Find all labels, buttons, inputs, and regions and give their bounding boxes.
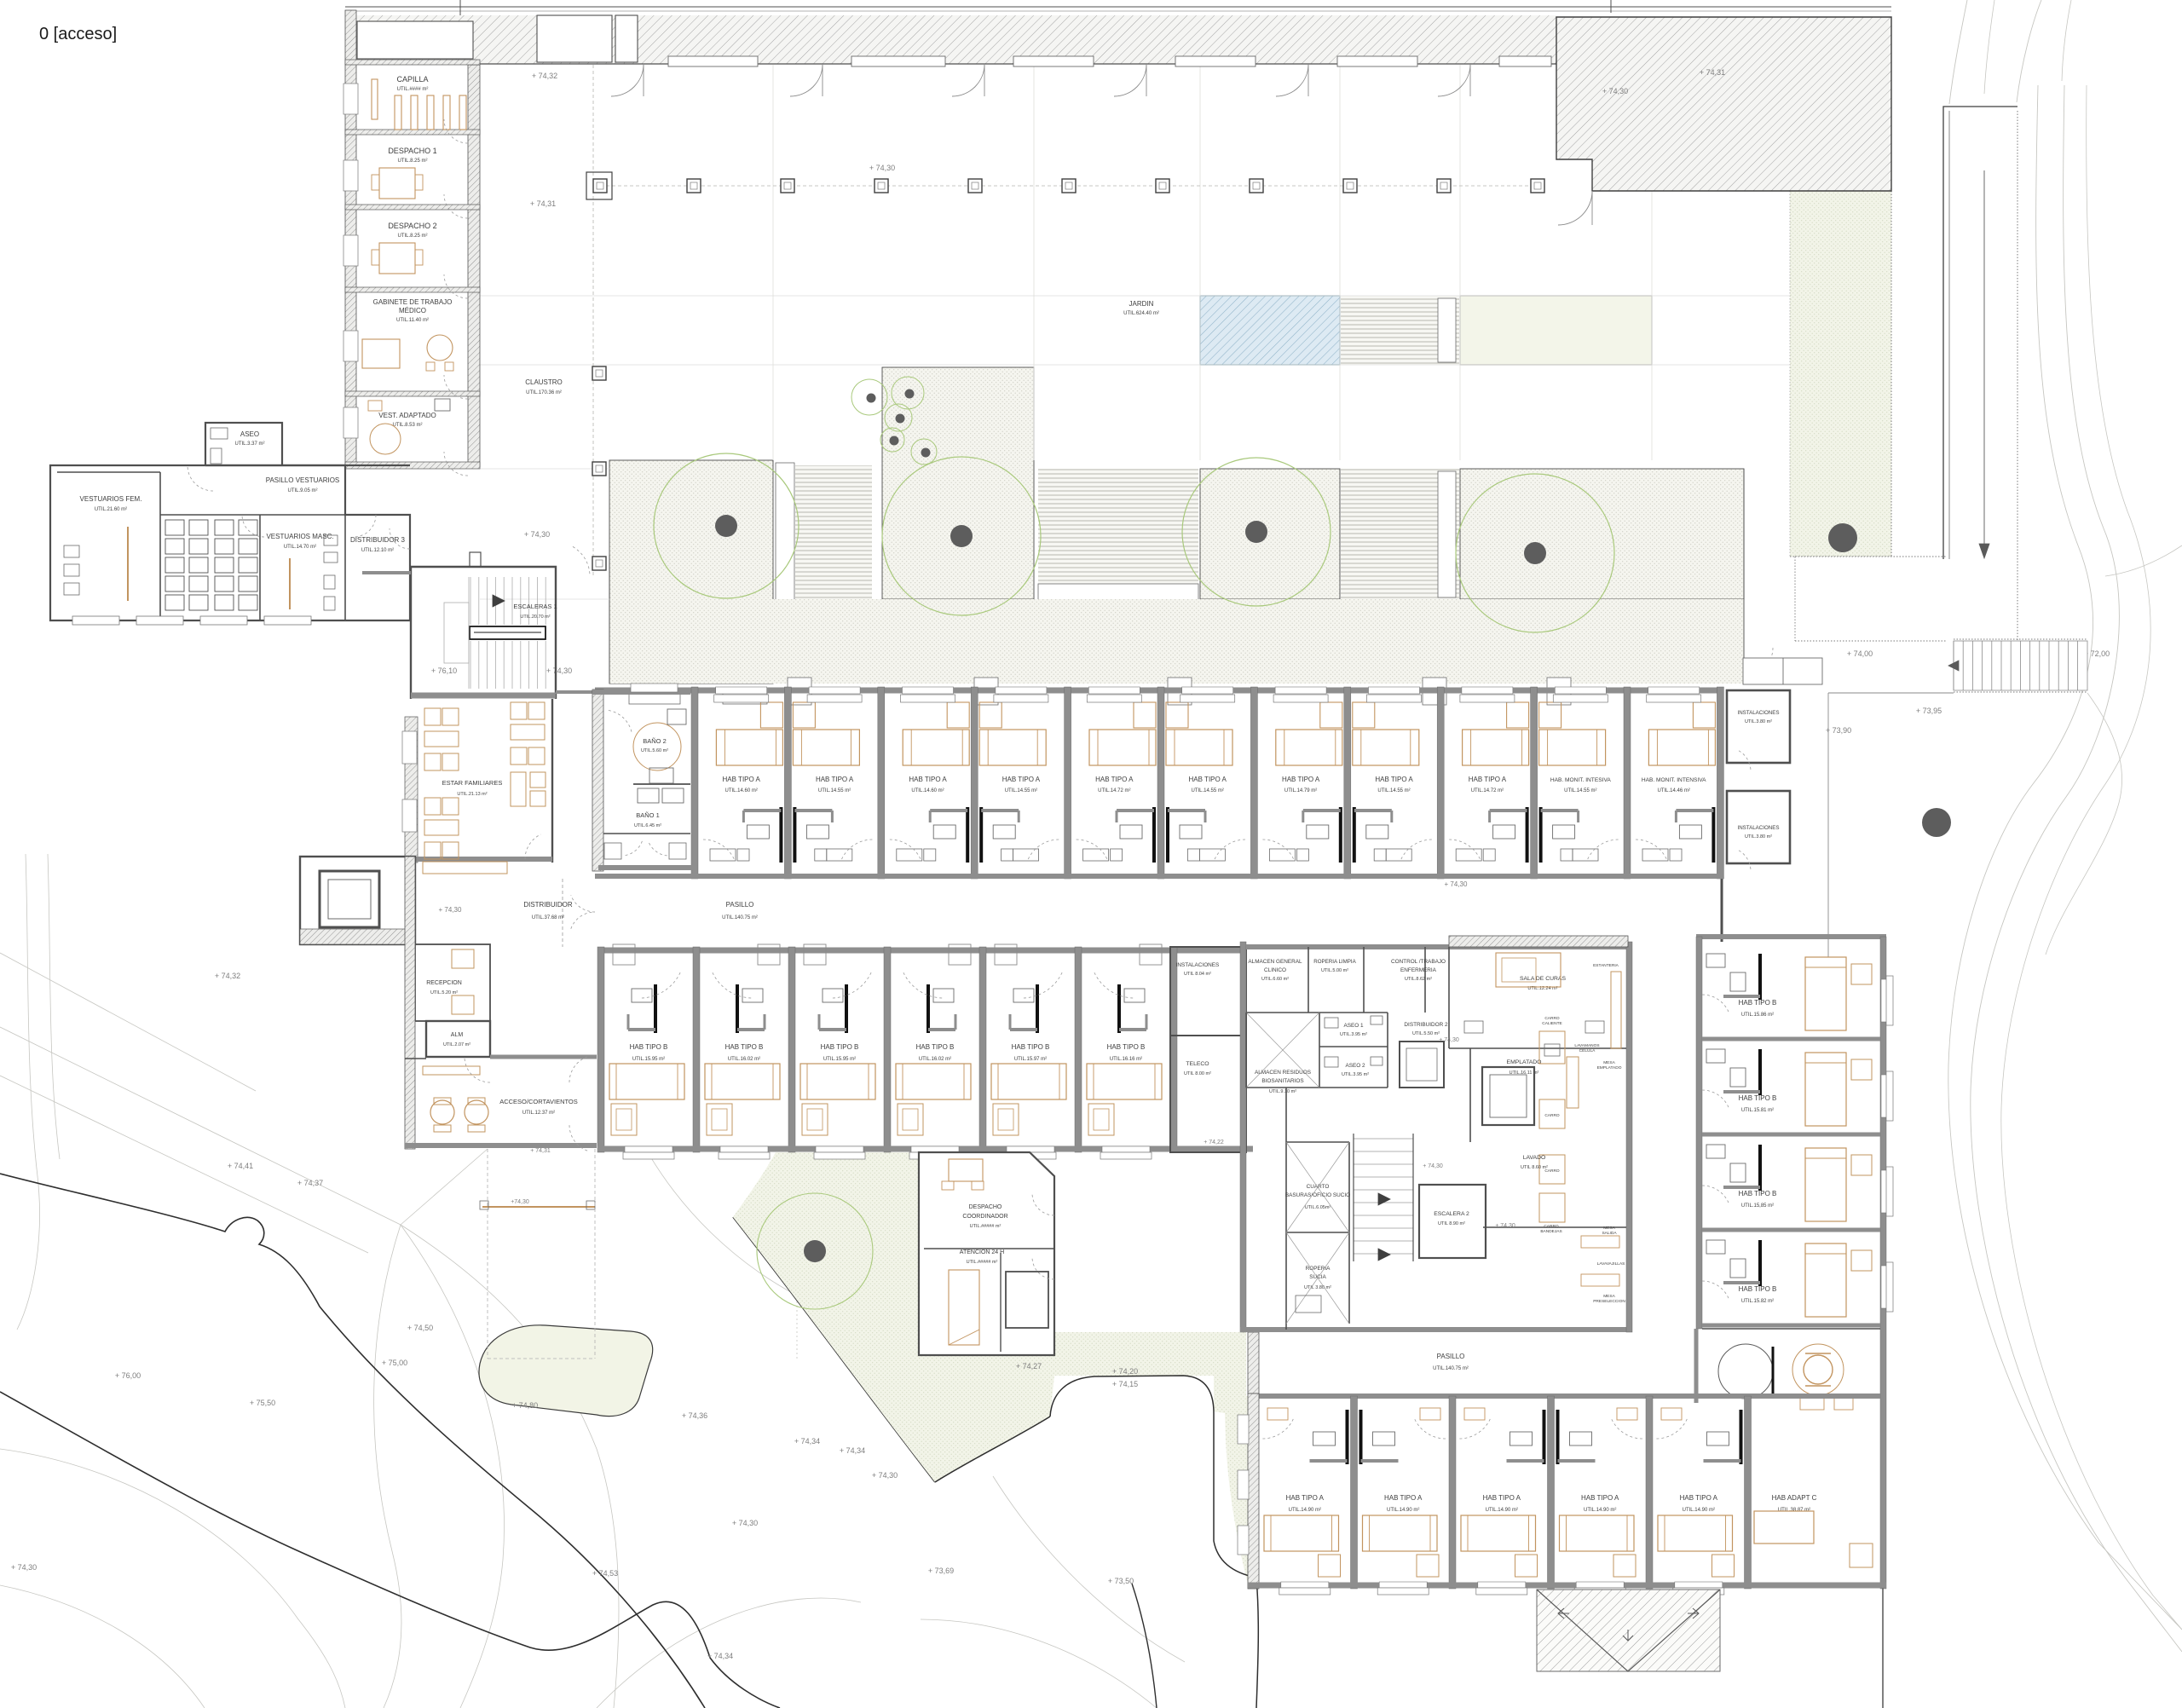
- svg-text:HAB TIPO B: HAB TIPO B: [1739, 1285, 1777, 1293]
- svg-text:+ 73,95: + 73,95: [1916, 707, 1942, 715]
- svg-text:UTIL.14.79 m²: UTIL.14.79 m²: [1284, 788, 1317, 793]
- svg-text:UTIL.8.25 m²: UTIL.8.25 m²: [397, 159, 427, 164]
- svg-text:HAB. MONIT. INTESIVA: HAB. MONIT. INTESIVA: [1550, 777, 1612, 783]
- svg-text:LAVAMANOS: LAVAMANOS: [1574, 1043, 1599, 1048]
- svg-text:+ 75,50: + 75,50: [250, 1399, 275, 1407]
- svg-text:UTIL.2.07 m²: UTIL.2.07 m²: [443, 1042, 470, 1047]
- svg-text:HAB TIPO A: HAB TIPO A: [1189, 776, 1227, 783]
- svg-text:UTIL.14.60 m²: UTIL.14.60 m²: [725, 788, 758, 793]
- svg-text:EMPLATADO: EMPLATADO: [1597, 1065, 1622, 1070]
- svg-text:ASEO 1: ASEO 1: [1343, 1023, 1364, 1029]
- svg-text:+ 74,32: + 74,32: [215, 972, 240, 980]
- svg-text:+ 74,30: + 74,30: [11, 1563, 37, 1572]
- svg-text:UTIL.14.55 m²: UTIL.14.55 m²: [1377, 788, 1410, 793]
- svg-text:ESTANTERIA: ESTANTERIA: [1593, 963, 1619, 968]
- svg-text:HAB TIPO A: HAB TIPO A: [1581, 1494, 1619, 1502]
- svg-text:+ 74,34: + 74,34: [707, 1652, 733, 1660]
- svg-text:GABINETE DE TRABAJO: GABINETE DE TRABAJO: [373, 298, 453, 306]
- svg-text:UTIL.6.60 m²: UTIL.6.60 m²: [1261, 977, 1289, 982]
- svg-text:+ 74,41: + 74,41: [228, 1162, 253, 1170]
- svg-text:HAB. MONIT. INTENSIVA: HAB. MONIT. INTENSIVA: [1642, 777, 1706, 783]
- svg-text:UTIL.15.95 m²: UTIL.15.95 m²: [632, 1057, 665, 1062]
- svg-text:+ 74,36: + 74,36: [682, 1411, 707, 1420]
- svg-text:ESCALERA 2: ESCALERA 2: [1434, 1211, 1469, 1217]
- svg-text:+ 74,32: + 74,32: [532, 72, 557, 80]
- svg-text:UTIL.##### m²: UTIL.##### m²: [970, 1224, 1002, 1229]
- svg-text:+ 73,69: + 73,69: [928, 1567, 954, 1575]
- svg-text:+ 74,00: + 74,00: [1847, 649, 1873, 658]
- svg-text:PRESELECCION: PRESELECCION: [1593, 1299, 1625, 1304]
- svg-text:UTIL 8.90 m²: UTIL 8.90 m²: [1438, 1221, 1465, 1226]
- svg-text:UTIL.6.45 m²: UTIL.6.45 m²: [634, 823, 661, 828]
- svg-text:UTIL.3.95 m²: UTIL.3.95 m²: [1342, 1072, 1369, 1077]
- svg-text:UTIL.140.75 m²: UTIL.140.75 m²: [722, 915, 758, 920]
- svg-text:UTIL.14.55 m²: UTIL.14.55 m²: [1192, 788, 1224, 793]
- svg-text:MÉDICO: MÉDICO: [399, 307, 426, 314]
- svg-text:UTIL 8.00 m²: UTIL 8.00 m²: [1184, 1071, 1211, 1076]
- svg-text:UTIL.170.36 m²: UTIL.170.36 m²: [526, 390, 562, 395]
- svg-text:VEST. ADAPTADO: VEST. ADAPTADO: [378, 412, 436, 419]
- svg-text:+ 74,30: + 74,30: [524, 530, 550, 539]
- svg-text:UTIL.16.16 m²: UTIL.16.16 m²: [1110, 1057, 1142, 1062]
- svg-text:VESTUARIOS FEM.: VESTUARIOS FEM.: [80, 495, 142, 503]
- svg-text:HAB TIPO A: HAB TIPO A: [816, 776, 854, 783]
- svg-text:ESTAR FAMILIARES: ESTAR FAMILIARES: [442, 779, 503, 787]
- svg-text:HAB TIPO A: HAB TIPO A: [1469, 776, 1507, 783]
- svg-text:HAB TIPO B: HAB TIPO B: [725, 1043, 764, 1051]
- svg-text:UTIL.15.81 m²: UTIL.15.81 m²: [1741, 1108, 1774, 1113]
- svg-text:ACCESO/CORTAVIENTOS: ACCESO/CORTAVIENTOS: [499, 1098, 578, 1105]
- svg-text:UTIL.9.10 m²: UTIL.9.10 m²: [1269, 1089, 1296, 1094]
- svg-text:+ 74,30: + 74,30: [1439, 1037, 1459, 1043]
- svg-text:CELULA: CELULA: [1579, 1048, 1596, 1053]
- svg-text:CARRO: CARRO: [1544, 1224, 1559, 1229]
- svg-text:+ 74,30: + 74,30: [732, 1519, 758, 1527]
- svg-text:HAB TIPO B: HAB TIPO B: [1012, 1043, 1050, 1051]
- svg-text:BAÑO 1: BAÑO 1: [636, 811, 660, 819]
- svg-text:HAB ADAPT C: HAB ADAPT C: [1772, 1494, 1817, 1502]
- svg-text:+ 74,15: + 74,15: [1112, 1380, 1138, 1388]
- svg-text:HAB TIPO A: HAB TIPO A: [1384, 1494, 1423, 1502]
- svg-text:0 [acceso]: 0 [acceso]: [39, 25, 117, 43]
- svg-text:UTIL.14.90 m²: UTIL.14.90 m²: [1387, 1508, 1419, 1513]
- svg-text:+ 74,30: + 74,30: [1445, 880, 1468, 888]
- svg-text:UTIL.8.62 m²: UTIL.8.62 m²: [1405, 977, 1432, 982]
- svg-text:ROPERIA LIMPIA: ROPERIA LIMPIA: [1313, 959, 1356, 965]
- svg-text:UTIL.14.60 m²: UTIL.14.60 m²: [911, 788, 944, 793]
- svg-text:+ 74,30: + 74,30: [869, 164, 895, 172]
- svg-text:MESA: MESA: [1603, 1226, 1615, 1231]
- svg-text:UTIL 3.80 m²: UTIL 3.80 m²: [1304, 1285, 1331, 1290]
- svg-text:HAB TIPO B: HAB TIPO B: [1739, 1190, 1777, 1197]
- svg-text:UTIL.20.70 m²: UTIL.20.70 m²: [520, 615, 550, 620]
- svg-text:ESCALERAS 1: ESCALERAS 1: [513, 603, 557, 610]
- svg-text:+ 74,34: + 74,34: [840, 1446, 865, 1455]
- svg-text:RECEPCION: RECEPCION: [426, 980, 462, 986]
- svg-text:ASEO: ASEO: [240, 430, 259, 438]
- svg-text:UTIL.8.25 m²: UTIL.8.25 m²: [397, 234, 427, 239]
- svg-text:UTIL.624.40 m²: UTIL.624.40 m²: [1123, 311, 1159, 316]
- svg-text:ALM: ALM: [451, 1032, 464, 1038]
- svg-text:MESA: MESA: [1603, 1294, 1615, 1299]
- svg-text:UTIL 8.04 m²: UTIL 8.04 m²: [1184, 972, 1211, 977]
- svg-text:INSTALACIONES: INSTALACIONES: [1737, 825, 1779, 831]
- svg-text:+ 74,30: + 74,30: [872, 1471, 898, 1480]
- svg-text:DISTRIBUIDOR: DISTRIBUIDOR: [523, 901, 573, 909]
- svg-text:PASILLO: PASILLO: [726, 901, 754, 909]
- svg-text:CAPILLA: CAPILLA: [396, 75, 428, 84]
- svg-text:HAB TIPO A: HAB TIPO A: [1680, 1494, 1718, 1502]
- svg-text:+ 74,20: + 74,20: [1112, 1367, 1138, 1376]
- svg-text:UTIL.9.05 m²: UTIL.9.05 m²: [287, 488, 317, 493]
- svg-text:UTIL.14.72 m²: UTIL.14.72 m²: [1098, 788, 1130, 793]
- svg-text:DISTRIBUIDOR 2: DISTRIBUIDOR 2: [1404, 1022, 1448, 1028]
- svg-text:+ 76,00: + 76,00: [115, 1371, 141, 1380]
- svg-text:UTIL.5.20 m²: UTIL.5.20 m²: [430, 990, 458, 995]
- svg-text:UTIL.11.40 m²: UTIL.11.40 m²: [396, 318, 429, 323]
- svg-text:HAB TIPO B: HAB TIPO B: [1739, 1094, 1777, 1102]
- svg-text:UTIL.3.95 m²: UTIL.3.95 m²: [1340, 1032, 1367, 1037]
- svg-text:BAÑO 2: BAÑO 2: [643, 737, 667, 745]
- svg-text:+ 74,30: + 74,30: [1423, 1163, 1443, 1169]
- svg-text:UTIL.21.60 m²: UTIL.21.60 m²: [95, 507, 127, 512]
- svg-text:UTIL.3.80 m²: UTIL.3.80 m²: [1745, 719, 1772, 724]
- svg-text:UTIL.14.70 m²: UTIL.14.70 m²: [284, 545, 316, 550]
- svg-text:+ 74,22: + 74,22: [1204, 1140, 1224, 1145]
- svg-text:UTIL.3.37 m²: UTIL.3.37 m²: [234, 441, 264, 447]
- svg-text:ATENCION 24 H: ATENCION 24 H: [960, 1249, 1004, 1255]
- svg-text:HAB TIPO A: HAB TIPO A: [1282, 776, 1320, 783]
- svg-text:+ 73,50: + 73,50: [1108, 1577, 1134, 1585]
- svg-text:UTIL.8.53 m²: UTIL.8.53 m²: [392, 423, 422, 428]
- svg-text:UTIL.15.86 m²: UTIL.15.86 m²: [1741, 1013, 1774, 1018]
- svg-text:UTIL 8.60 m²: UTIL 8.60 m²: [1521, 1165, 1548, 1170]
- svg-text:LAVADO: LAVADO: [1523, 1155, 1546, 1161]
- svg-text:HAB TIPO A: HAB TIPO A: [1095, 776, 1134, 783]
- svg-text:+ 76,10: + 76,10: [431, 666, 457, 675]
- svg-text:UTIL.14.55 m²: UTIL.14.55 m²: [1564, 788, 1596, 793]
- svg-text:HAB TIPO B: HAB TIPO B: [916, 1043, 955, 1051]
- svg-text:UTIL.14.90 m²: UTIL.14.90 m²: [1683, 1508, 1715, 1513]
- svg-text:+74,30: +74,30: [511, 1199, 529, 1205]
- svg-text:+ 74,27: + 74,27: [1016, 1362, 1042, 1370]
- svg-text:UTIL.14.55 m²: UTIL.14.55 m²: [818, 788, 851, 793]
- svg-text:PASILLO VESTUARIOS: PASILLO VESTUARIOS: [266, 476, 340, 484]
- svg-text:CARRO: CARRO: [1544, 1016, 1560, 1021]
- svg-text:UTIL.15.95 m²: UTIL.15.95 m²: [823, 1057, 856, 1062]
- svg-text:+ 74,31: + 74,31: [1700, 68, 1725, 77]
- svg-text:CONTROL /TRABAJO: CONTROL /TRABAJO: [1391, 959, 1446, 965]
- svg-text:CARRO: CARRO: [1544, 1113, 1560, 1118]
- svg-text:CALIENTE: CALIENTE: [1542, 1021, 1561, 1026]
- svg-text:HAB TIPO B: HAB TIPO B: [1739, 999, 1777, 1007]
- svg-text:UTIL.5.00 m²: UTIL.5.00 m²: [1321, 968, 1348, 973]
- svg-text:UTIL.37.68 m²: UTIL.37.68 m²: [532, 915, 564, 920]
- svg-text:UTIL.12.37 m²: UTIL.12.37 m²: [522, 1111, 555, 1116]
- svg-text:UTIL.16.02 m²: UTIL.16.02 m²: [919, 1057, 951, 1062]
- svg-text:SALIDA: SALIDA: [1602, 1231, 1617, 1236]
- svg-text:+ 74,30: + 74,30: [1602, 87, 1628, 95]
- svg-text:ASEO 2: ASEO 2: [1345, 1063, 1365, 1069]
- svg-text:+ 72,00: + 72,00: [2084, 649, 2110, 658]
- svg-text:UTIL.14.90 m²: UTIL.14.90 m²: [1289, 1508, 1321, 1513]
- svg-text:INSTALACIONES: INSTALACIONES: [1176, 962, 1220, 968]
- svg-text:+ 74,37: + 74,37: [297, 1179, 323, 1187]
- svg-text:UTIL.14.90 m²: UTIL.14.90 m²: [1584, 1508, 1616, 1513]
- svg-text:+ 74,31: + 74,31: [530, 199, 556, 208]
- svg-text:DESPACHO: DESPACHO: [969, 1204, 1002, 1210]
- svg-text:HAB TIPO A: HAB TIPO A: [723, 776, 761, 783]
- svg-text:LAVAVAJILLAS: LAVAVAJILLAS: [1597, 1261, 1625, 1267]
- svg-text:ENFERMERIA: ENFERMERIA: [1400, 967, 1437, 973]
- svg-text:PASILLO: PASILLO: [1437, 1353, 1465, 1360]
- svg-text:HAB TIPO A: HAB TIPO A: [1002, 776, 1041, 783]
- svg-text:UTIL.#### m²: UTIL.#### m²: [397, 87, 429, 92]
- svg-text:CLAUSTRO: CLAUSTRO: [525, 378, 563, 386]
- svg-text:HAB TIPO A: HAB TIPO A: [1286, 1494, 1325, 1502]
- svg-text:+ 74,34: + 74,34: [794, 1437, 820, 1445]
- svg-text:HAB TIPO A: HAB TIPO A: [1483, 1494, 1521, 1502]
- svg-text:+ 74,31: + 74,31: [530, 1148, 551, 1154]
- svg-text:DISTRIBUIDOR 3: DISTRIBUIDOR 3: [350, 536, 406, 544]
- svg-text:BANDEJAS: BANDEJAS: [1540, 1229, 1561, 1234]
- svg-text:INSTALACIONES: INSTALACIONES: [1737, 710, 1779, 716]
- svg-text:+ 75,00: + 75,00: [382, 1359, 407, 1367]
- svg-text:EMPLATADO: EMPLATADO: [1507, 1059, 1542, 1065]
- svg-text:HAB TIPO A: HAB TIPO A: [1375, 776, 1413, 783]
- svg-text:CLINICO: CLINICO: [1264, 967, 1286, 973]
- svg-text:+ 74,50: + 74,50: [407, 1324, 433, 1332]
- svg-text:HAB TIPO B: HAB TIPO B: [630, 1043, 668, 1051]
- svg-text:COORDINADOR: COORDINADOR: [962, 1214, 1007, 1220]
- svg-text:UTIL.14.72 m²: UTIL.14.72 m²: [1471, 788, 1504, 793]
- svg-text:JARDIN: JARDIN: [1129, 300, 1154, 308]
- svg-text:HAB TIPO B: HAB TIPO B: [821, 1043, 859, 1051]
- svg-text:UTIL.5.60 m²: UTIL.5.60 m²: [641, 748, 668, 753]
- svg-text:TELECO: TELECO: [1186, 1061, 1209, 1067]
- svg-text:UTIL.14.46 m²: UTIL.14.46 m²: [1658, 788, 1690, 793]
- svg-text:ROPERIA: ROPERIA: [1306, 1266, 1331, 1272]
- svg-text:UTIL.12.10 m²: UTIL.12.10 m²: [361, 548, 394, 553]
- svg-text:SALA DE CURAS: SALA DE CURAS: [1520, 976, 1566, 982]
- svg-text:UTIL.3.80 m²: UTIL.3.80 m²: [1745, 834, 1772, 840]
- svg-text:UTIL.14.55 m²: UTIL.14.55 m²: [1005, 788, 1037, 793]
- svg-text:UTIL.21.13 m²: UTIL.21.13 m²: [457, 792, 487, 797]
- svg-text:+ 74,30: + 74,30: [1495, 1223, 1515, 1229]
- svg-text:ALMACEN GENERAL: ALMACEN GENERAL: [1248, 959, 1302, 965]
- svg-text:DESPACHO 2: DESPACHO 2: [388, 222, 436, 230]
- svg-text:UTIL.16.02 m²: UTIL.16.02 m²: [728, 1057, 760, 1062]
- svg-text:+ 74,30: + 74,30: [439, 906, 462, 914]
- svg-text:DESPACHO 1: DESPACHO 1: [388, 147, 436, 155]
- svg-text:+ 74,80: + 74,80: [512, 1401, 538, 1410]
- svg-text:UTIL.140.75 m²: UTIL.140.75 m²: [1433, 1366, 1469, 1371]
- svg-text:+ 74,30: + 74,30: [546, 666, 572, 675]
- svg-text:UTIL.##### m²: UTIL.##### m²: [967, 1260, 998, 1265]
- svg-text:BIOSANITARIOS: BIOSANITARIOS: [1261, 1078, 1303, 1084]
- svg-text:+ 73,90: + 73,90: [1826, 726, 1851, 735]
- svg-text:HAB TIPO A: HAB TIPO A: [909, 776, 947, 783]
- svg-text:UTIL.14.90 m²: UTIL.14.90 m²: [1486, 1508, 1518, 1513]
- svg-text:UTIL.6.05m²: UTIL.6.05m²: [1305, 1205, 1331, 1210]
- svg-text:BASURAS/OFICIO SUCIO: BASURAS/OFICIO SUCIO: [1285, 1192, 1350, 1198]
- svg-text:HAB TIPO B: HAB TIPO B: [1107, 1043, 1146, 1051]
- svg-text:UTIL.15.97 m²: UTIL.15.97 m²: [1014, 1057, 1047, 1062]
- svg-text:UTIL.15.82 m²: UTIL.15.82 m²: [1741, 1299, 1774, 1304]
- svg-text:UTIL.5.50 m²: UTIL.5.50 m²: [1412, 1031, 1440, 1036]
- svg-text:MESA: MESA: [1603, 1060, 1615, 1065]
- svg-text:UTIL.15,85 m²: UTIL.15,85 m²: [1741, 1203, 1774, 1209]
- svg-text:+ 74,53: + 74,53: [592, 1569, 618, 1578]
